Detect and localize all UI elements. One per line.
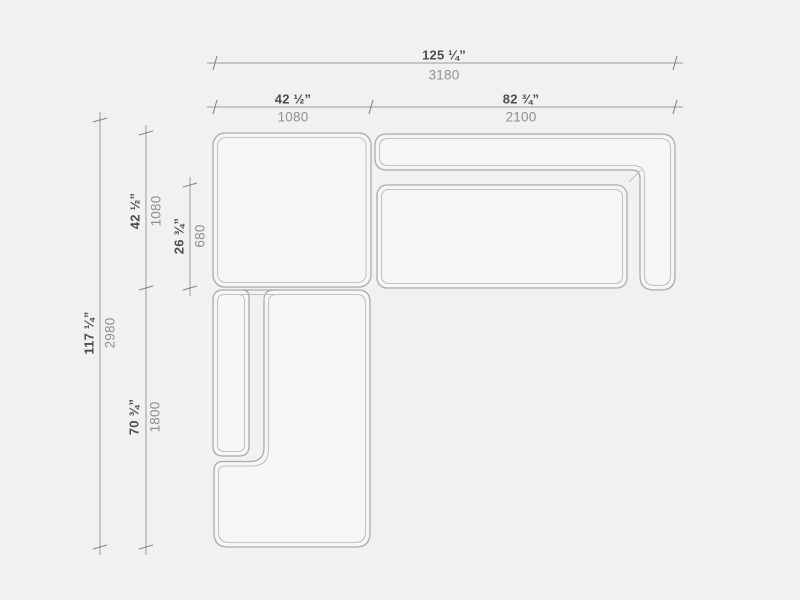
sofa-seat-cushion-outline: [377, 185, 627, 288]
chaise-module: [213, 290, 370, 547]
dim-corner-width-mm: 1080: [278, 110, 309, 125]
dim-corner-depth-inches: 42 ½”: [128, 193, 143, 229]
dim-seat-depth-mm: 680: [193, 224, 208, 247]
chaise-arm-outline: [213, 290, 249, 456]
dim-seat-depth-inches: 26 ¾”: [172, 218, 187, 254]
dim-total-depth-mm: 2980: [103, 318, 118, 349]
sofa-technical-drawing: [0, 0, 800, 600]
dim-corner-width-inches: 42 ½”: [275, 92, 311, 107]
dim-chaise-length-inches: 70 ¾”: [127, 399, 142, 435]
dim-sofa-width-mm: 2100: [506, 110, 537, 125]
dim-chaise-length-mm: 1800: [148, 402, 163, 433]
dim-total-depth-inches: 117 ¼”: [82, 311, 97, 354]
dimension-lines: [93, 56, 683, 555]
corner-module: [213, 133, 371, 287]
dim-total-width-mm: 3180: [429, 68, 460, 83]
drawing-canvas: 125 ¼” 3180 42 ½” 1080 82 ¾” 2100 117 ¼”…: [0, 0, 800, 600]
dim-corner-depth-mm: 1080: [149, 196, 164, 227]
dim-sofa-width-inches: 82 ¾”: [503, 92, 539, 107]
corner-module-outline: [213, 133, 371, 287]
dim-total-width-inches: 125 ¼”: [422, 48, 466, 63]
sofa-module: [375, 134, 675, 290]
